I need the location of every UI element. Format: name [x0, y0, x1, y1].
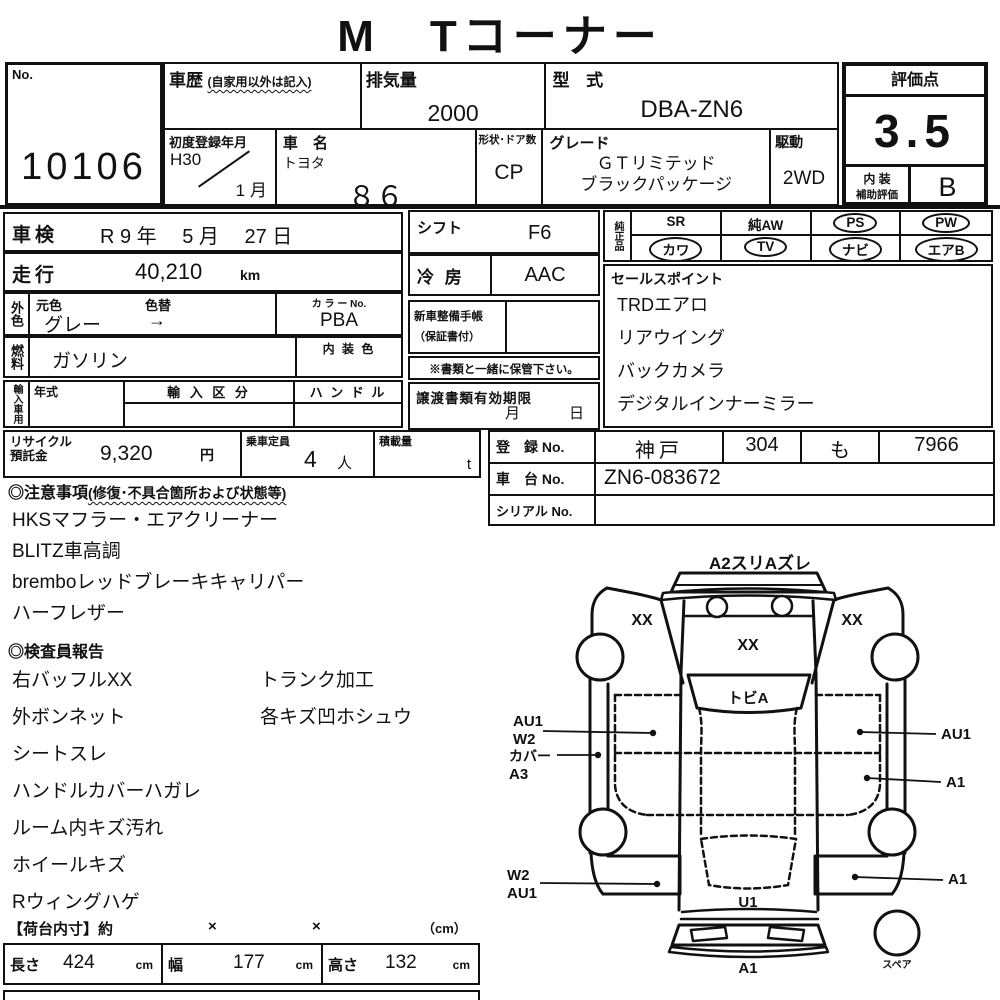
model-code-label: 型 式: [552, 71, 609, 90]
score-box: 評価点 3.5 内 装 補助評価 B: [842, 62, 988, 206]
cargo-width-label: 幅: [168, 954, 183, 975]
cargo-height-label: 高さ: [328, 954, 358, 975]
fuel-value-cell: ガソリン: [30, 338, 297, 376]
cargo-length-value: 424: [63, 952, 95, 974]
history-note: (自家用以外は記入): [207, 75, 311, 89]
sales-point-item: TRDエアロ: [617, 289, 991, 322]
diagram-right-door-mark: XX: [841, 612, 863, 629]
maintenance-book-line2: （保証書付）: [414, 328, 505, 344]
shift-value: F6: [528, 222, 551, 245]
front-right-wheel: [872, 634, 918, 680]
import-division-cell: 輸 入 区 分: [125, 382, 295, 426]
cargo-width-value: 177: [233, 952, 265, 974]
sales-points-box: セールスポイント TRDエアロ リアウイング バックカメラ デジタルインナーミラ…: [603, 264, 993, 428]
color-no-label: カ ラ ー No.: [277, 295, 401, 310]
report-item: 右バッフルXX: [12, 662, 252, 699]
equipment-airbag: エアB: [901, 236, 991, 262]
first-reg-label: 初度登録年月: [169, 132, 271, 151]
cargo-length-unit: cm: [136, 958, 153, 972]
maintenance-book-value: [507, 302, 598, 352]
diagram-callout-left-rear-1: W2: [507, 867, 530, 884]
car-name-label: 車 名: [283, 135, 328, 152]
auction-sheet: M Tコーナー No. 10106 車歴 (自家用以外は記入) 排気量 2000…: [0, 0, 1000, 1000]
cargo-width-cell: 幅 177 cm: [163, 945, 323, 983]
cargo-table: 長さ 424 cm 幅 177 cm 高さ 132 cm: [3, 943, 480, 985]
transfer-docs-day: 日: [569, 402, 584, 423]
sales-point-item: リアウイング: [617, 322, 991, 355]
cargo-title: 【荷台内寸】約: [8, 918, 113, 939]
registration-label: 登 録 No.: [490, 432, 596, 462]
page-title: M Tコーナー: [0, 0, 1000, 64]
shift-label: シフト: [417, 217, 462, 238]
registration-class: 304: [724, 432, 802, 462]
load-cell: 積載量 t: [375, 432, 479, 476]
notes-title-note: (修復･不具合箇所および状態等): [88, 485, 286, 501]
headlight-washer-left: [707, 597, 727, 617]
diagram-callout-left-sill-1: カバー: [509, 748, 551, 764]
equipment-ps: PS: [812, 212, 902, 236]
recycle-row: リサイクル 預託金 9,320 円 乗車定員 4 人 積載量 t: [3, 430, 481, 478]
grade-line1: ＧＴリミテッド: [549, 153, 763, 174]
model-code-value: DBA-ZN6: [552, 96, 831, 124]
notes-section: ◎注意事項(修復･不具合箇所および状態等) HKSマフラー・エアクリーナー BL…: [8, 479, 478, 629]
recycle-cell: リサイクル 預託金 9,320 円: [5, 432, 242, 476]
capacity-cell: 乗車定員 4 人: [242, 432, 375, 476]
section-divider: [0, 205, 1000, 209]
cargo-length-label: 長さ: [10, 954, 40, 975]
diagram-front-note: A2スリAズレ: [709, 553, 811, 573]
equipment-stub: 純正品: [605, 212, 632, 260]
grade-line2: ブラックパッケージ: [549, 174, 763, 195]
car-maker: トヨタ: [283, 153, 469, 173]
serial-value: [596, 496, 993, 525]
interior-score-label: 内 装 補助評価: [846, 167, 911, 208]
rear-left-wheel: [580, 809, 626, 855]
equipment-pw: PW: [901, 212, 991, 236]
shaken-label: 車検: [12, 220, 58, 247]
diagram-callout-left-front-2: W2: [513, 731, 536, 748]
capacity-label: 乗車定員: [246, 433, 290, 449]
lot-number-box: No. 10106: [5, 62, 163, 206]
cargo-width-unit: cm: [296, 958, 313, 972]
import-handle-cell: ハ ン ド ル: [295, 382, 401, 426]
interior-score-value: B: [911, 167, 984, 208]
next-section-stub: [3, 990, 480, 1000]
tail-light-left: [691, 927, 727, 941]
shaken-row: 車検 R 9 年 5 月 27 日: [3, 212, 403, 252]
grade-label: グレード: [549, 135, 609, 152]
maintenance-book-label: 新車整備手帳 （保証書付）: [410, 302, 507, 352]
body-doors-cell: 形状･ドア数 CP: [477, 130, 544, 205]
car-name-cell: 車 名 トヨタ ８６: [277, 130, 477, 205]
diagram-hood-mark: XX: [737, 637, 759, 654]
history-cell: 車歴 (自家用以外は記入): [165, 64, 362, 128]
report-item: 各キズ凹ホシュウ: [260, 699, 480, 736]
report-item: ホイールキズ: [12, 847, 252, 884]
notes-title: ◎注意事項: [8, 485, 88, 502]
ac-value: AAC: [492, 256, 598, 294]
note-item: ハーフレザー: [12, 598, 478, 629]
color-change-arrow: →: [148, 310, 166, 331]
note-item: bremboレッドブレーキキャリパー: [12, 567, 478, 598]
equipment-table: 純正品 SR 純AW PS PW カワ TV ナビ エアB: [603, 210, 993, 262]
color-row: 外色 元色 色替 グレー → カ ラ ー No. PBA: [3, 292, 403, 336]
mileage-unit: km: [240, 267, 260, 283]
displacement-cell: 排気量 2000: [362, 64, 547, 128]
capacity-value: 4: [304, 446, 317, 473]
diagram-callout-right-front: AU1: [941, 726, 971, 743]
maintenance-book-line1: 新車整備手帳: [414, 308, 505, 324]
fuel-value: ガソリン: [52, 346, 128, 373]
drive-cell: 駆動 2WD: [771, 130, 837, 205]
color-main-cell: 元色 色替 グレー →: [30, 294, 277, 334]
recycle-unit: 円: [200, 445, 214, 465]
registration-table: 登 録 No. 神戸 304 も 7966 車 台 No. ZN6-083672…: [488, 430, 995, 526]
chassis-value: ZN6-083672: [596, 464, 993, 494]
diagram-callout-left-rear-2: AU1: [507, 885, 537, 902]
ac-box: 冷 房 AAC: [408, 254, 600, 296]
first-reg-month: 1 月: [236, 176, 267, 201]
recycle-value: 9,320: [100, 442, 153, 466]
cargo-x2: ×: [312, 918, 321, 935]
interior-score-label2: 補助評価: [846, 187, 908, 202]
equipment-tv: TV: [722, 236, 812, 262]
sales-points-title: セールスポイント: [605, 266, 991, 289]
lot-number-value: 10106: [8, 146, 160, 189]
registration-kana: も: [802, 432, 880, 462]
body-doors-label2: 形状･ドア数: [479, 132, 540, 147]
report-item: Rウィングハゲ: [12, 884, 252, 921]
inspector-report-title: ◎検査員報告: [8, 638, 488, 662]
headlight-washer-right: [772, 596, 792, 616]
tail-light-right: [768, 927, 804, 941]
drive-value: 2WD: [775, 168, 833, 190]
score-value: 3.5: [846, 97, 984, 167]
mileage-row: 走行 40,210 km: [3, 252, 403, 292]
load-unit: t: [467, 456, 471, 473]
load-label: 積載量: [379, 433, 412, 449]
report-item: シートスレ: [12, 736, 252, 773]
grade-cell: グレード ＧＴリミテッド ブラックパッケージ: [543, 130, 771, 205]
displacement-value: 2000: [366, 100, 541, 127]
cargo-unit-note: （cm）: [422, 918, 467, 937]
equipment-navi: ナビ: [812, 236, 902, 262]
import-year-cell: 年式: [30, 382, 125, 426]
first-reg-year: H30: [170, 150, 201, 170]
interior-score-label1: 内 装: [846, 170, 908, 187]
rear-window: [701, 836, 796, 889]
shift-box: シフト F6: [408, 210, 600, 254]
car-model: ８６: [283, 175, 469, 215]
cargo-length-cell: 長さ 424 cm: [5, 945, 163, 983]
model-code-cell: 型 式 DBA-ZN6: [546, 64, 837, 128]
import-stub: 輸入車用: [5, 382, 30, 426]
import-handle-label: ハ ン ド ル: [295, 382, 401, 404]
registration-region: 神戸: [596, 432, 724, 462]
spare-tire: [875, 911, 919, 955]
color-stub: 外色: [5, 294, 30, 334]
diagram-left-door-mark: XX: [631, 612, 653, 629]
equipment-sr: SR: [632, 212, 722, 236]
color-value: グレー: [44, 310, 101, 337]
color-no-cell: カ ラ ー No. PBA: [277, 294, 401, 334]
import-division-label: 輸 入 区 分: [125, 382, 293, 404]
note-item: BLITZ車高調: [12, 536, 478, 567]
fuel-stub: 燃料: [5, 338, 30, 376]
cargo-height-cell: 高さ 132 cm: [323, 945, 478, 983]
cargo-height-unit: cm: [453, 958, 470, 972]
registration-number: 7966: [880, 432, 993, 462]
car-diagram: A2スリAズレ XX XX XX トビA AU1 W2 カバー A3 AU1 A…: [495, 553, 1000, 978]
cargo-x1: ×: [208, 918, 217, 935]
diagram-windshield-mark: トビA: [728, 690, 769, 707]
history-label: 車歴: [169, 71, 203, 90]
diagram-callout-right-mid: A1: [946, 774, 965, 791]
left-rear-quarter: [603, 856, 680, 894]
body-doors-value: CP: [479, 161, 540, 185]
color-no-value: PBA: [277, 310, 401, 332]
diagram-rear-window-mark: U1: [738, 894, 757, 911]
front-left-wheel: [577, 634, 623, 680]
interior-color-label: 内 装 色: [297, 340, 401, 357]
diagram-spare-label: スペア: [882, 959, 911, 971]
sales-point-item: デジタルインナーミラー: [617, 388, 991, 421]
shaken-value: R 9 年 5 月 27 日: [100, 220, 292, 249]
diagram-rear-bumper-mark: A1: [738, 960, 757, 977]
report-item: トランク加工: [260, 662, 480, 699]
first-reg-cell: 初度登録年月 H30 1 月: [165, 130, 277, 205]
lot-number-label: No.: [12, 67, 33, 82]
report-item: ハンドルカバーハガレ: [12, 773, 252, 810]
diagram-callout-left-front-1: AU1: [513, 713, 543, 730]
maintenance-book-box: 新車整備手帳 （保証書付）: [408, 300, 600, 354]
capacity-unit: 人: [337, 452, 352, 473]
mileage-value: 40,210: [135, 259, 202, 285]
report-item: 外ボンネット: [12, 699, 252, 736]
note-item: HKSマフラー・エアクリーナー: [12, 505, 478, 536]
score-label: 評価点: [846, 66, 984, 97]
chassis-label: 車 台 No.: [490, 464, 596, 494]
displacement-label: 排気量: [366, 71, 417, 90]
cargo-height-value: 132: [385, 952, 417, 974]
diagram-callout-left-sill-2: A3: [509, 766, 528, 783]
import-year-label: 年式: [34, 383, 58, 400]
diagram-callout-right-rear: A1: [948, 871, 967, 888]
sales-point-item: バックカメラ: [617, 355, 991, 388]
serial-label: シリアル No.: [490, 496, 596, 525]
drive-label: 駆動: [775, 132, 833, 152]
equipment-aw: 純AW: [722, 212, 812, 236]
top-spec-table: 車歴 (自家用以外は記入) 排気量 2000 型 式 DBA-ZN6 初度登録年…: [163, 62, 839, 206]
keep-note-strip: ※書類と一緒に保管下さい。: [408, 356, 600, 380]
transfer-docs-box: 譲渡書類有効期限 月 日: [408, 382, 600, 430]
mileage-label: 走行: [12, 260, 58, 287]
inspector-report-section: ◎検査員報告 右バッフルXX 外ボンネット シートスレ ハンドルカバーハガレ ル…: [8, 638, 488, 662]
import-row: 輸入車用 年式 輸 入 区 分 ハ ン ド ル: [3, 380, 403, 428]
interior-color-cell: 内 装 色: [297, 338, 401, 376]
transfer-docs-month: 月: [505, 402, 520, 423]
fuel-row: 燃料 ガソリン 内 装 色: [3, 336, 403, 378]
ac-label: 冷 房: [410, 256, 492, 294]
rear-right-wheel: [869, 809, 915, 855]
report-item: ルーム内キズ汚れ: [12, 810, 252, 847]
equipment-kawa: カワ: [632, 236, 722, 262]
